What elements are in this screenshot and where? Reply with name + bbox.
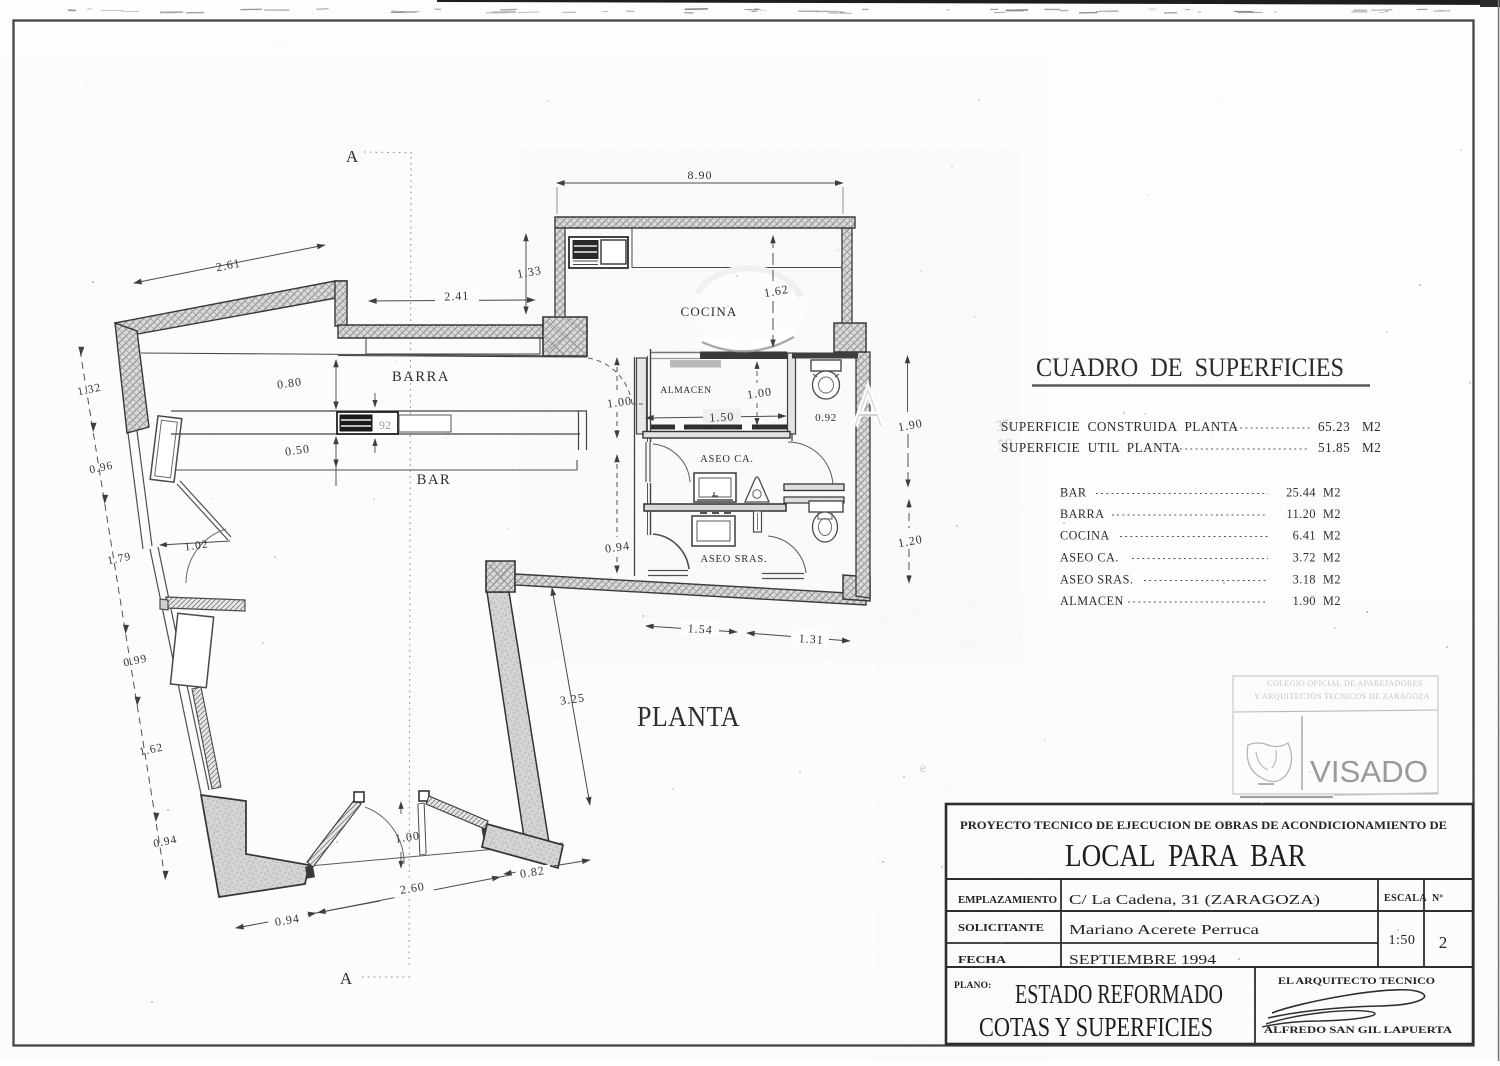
svg-text:2.41: 2.41 xyxy=(444,288,470,303)
svg-text:SUPERFICIE CONSTRUIDA PLANTA: SUPERFICIE CONSTRUIDA PLANTA xyxy=(1001,419,1238,434)
svg-text:25.44: 25.44 xyxy=(1286,486,1316,500)
svg-text:2: 2 xyxy=(1439,933,1448,952)
svg-text:EMPLAZAMIENTO: EMPLAZAMIENTO xyxy=(958,895,1057,906)
svg-text:ASEO CA.: ASEO CA. xyxy=(700,454,754,465)
svg-text:1.54: 1.54 xyxy=(687,621,713,637)
svg-text:M2: M2 xyxy=(1323,551,1341,565)
svg-text:M2: M2 xyxy=(1323,594,1341,608)
svg-text:ASEO SRAS.: ASEO SRAS. xyxy=(1060,573,1133,587)
svg-text:92: 92 xyxy=(379,418,391,432)
svg-text:COLEGIO OFICIAL DE APAREJADORE: COLEGIO OFICIAL DE APAREJADORES xyxy=(1267,679,1423,688)
svg-text:M2: M2 xyxy=(1362,419,1381,434)
svg-text:M2: M2 xyxy=(1323,573,1341,587)
svg-text:1.50: 1.50 xyxy=(709,409,735,424)
svg-text:BARRA: BARRA xyxy=(1060,507,1105,521)
svg-text:ESTADO REFORMADO: ESTADO REFORMADO xyxy=(1015,979,1223,1009)
svg-text:1.90: 1.90 xyxy=(1293,594,1316,608)
svg-text:LOCAL PARA BAR: LOCAL PARA BAR xyxy=(1065,837,1307,873)
svg-text:ASEO CA.: ASEO CA. xyxy=(1060,551,1119,565)
svg-text:51.85: 51.85 xyxy=(1318,440,1350,455)
svg-text:ALMACEN: ALMACEN xyxy=(660,386,711,396)
svg-text:ALFREDO SAN GIL LAPUERTA: ALFREDO SAN GIL LAPUERTA xyxy=(1264,1025,1452,1036)
svg-text:PROYECTO TECNICO DE EJECUCION: PROYECTO TECNICO DE EJECUCION DE OBRAS D… xyxy=(960,820,1447,832)
svg-text:BARRA: BARRA xyxy=(392,369,450,385)
svg-text:M2: M2 xyxy=(1323,529,1341,543)
svg-text:C/ La Cadena, 31 (ZARAGOZA): C/ La Cadena, 31 (ZARAGOZA) xyxy=(1069,892,1320,907)
svg-text:VISADO: VISADO xyxy=(1310,754,1428,789)
svg-text:1:50: 1:50 xyxy=(1389,933,1416,948)
svg-text:BAR: BAR xyxy=(417,472,452,488)
svg-text:M2: M2 xyxy=(1362,440,1381,455)
svg-text:8.90: 8.90 xyxy=(688,168,713,182)
svg-text:0.92: 0.92 xyxy=(815,412,837,424)
svg-text:11.20: 11.20 xyxy=(1287,507,1316,521)
svg-text:65.23: 65.23 xyxy=(1318,419,1350,434)
svg-text:COCINA: COCINA xyxy=(680,304,737,319)
svg-text:Nº: Nº xyxy=(1432,893,1444,904)
svg-text:Mariano Acerete Perruca: Mariano Acerete Perruca xyxy=(1069,922,1259,937)
svg-text:M2: M2 xyxy=(1323,486,1341,500)
svg-text:A: A xyxy=(346,147,359,166)
svg-text:A: A xyxy=(340,969,353,988)
svg-text:M2: M2 xyxy=(1323,507,1341,521)
svg-text:SUPERFICIE UTIL PLANTA: SUPERFICIE UTIL PLANTA xyxy=(1001,440,1181,455)
svg-text:COCINA: COCINA xyxy=(1060,529,1110,543)
svg-text:SEPTIEMBRE 1994: SEPTIEMBRE 1994 xyxy=(1069,952,1216,967)
svg-text:COTAS Y SUPERFICIES: COTAS Y SUPERFICIES xyxy=(979,1012,1213,1042)
svg-text:Y ARQUITECTOS TECNICOS DE ZARA: Y ARQUITECTOS TECNICOS DE ZARAGOZA xyxy=(1254,692,1430,701)
svg-text:EL ARQUITECTO TECNICO: EL ARQUITECTO TECNICO xyxy=(1278,977,1435,987)
svg-text:CUADRO DE SUPERFICIES: CUADRO DE SUPERFICIES xyxy=(1036,353,1344,382)
svg-text:3.18: 3.18 xyxy=(1293,573,1316,587)
svg-text:6.41: 6.41 xyxy=(1293,529,1316,543)
svg-text:BAR: BAR xyxy=(1060,486,1087,500)
svg-text:PLANTA: PLANTA xyxy=(637,701,740,733)
svg-text:1.31: 1.31 xyxy=(798,631,824,647)
svg-text:e: e xyxy=(920,761,926,776)
svg-text:FECHA: FECHA xyxy=(958,955,1007,966)
svg-text:ASEO SRAS.: ASEO SRAS. xyxy=(701,554,768,565)
svg-text:ESCALA: ESCALA xyxy=(1384,893,1427,904)
svg-text:ALMACEN: ALMACEN xyxy=(1060,594,1124,608)
svg-text:3.72: 3.72 xyxy=(1293,551,1316,565)
svg-text:SOLICITANTE: SOLICITANTE xyxy=(958,923,1044,934)
svg-text:PLANO:: PLANO: xyxy=(954,981,992,991)
